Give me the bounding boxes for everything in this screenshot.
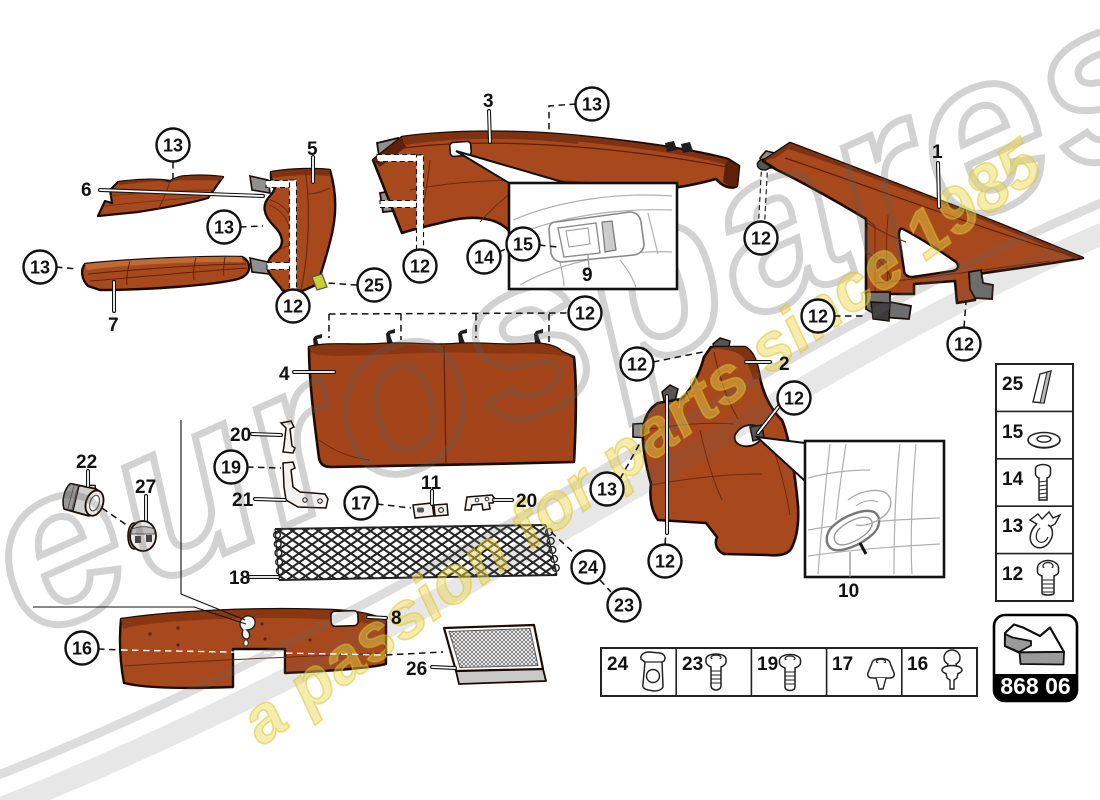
svg-text:12: 12	[627, 355, 647, 375]
svg-text:13: 13	[582, 95, 602, 115]
svg-text:12: 12	[954, 335, 974, 355]
svg-text:13: 13	[1002, 516, 1023, 537]
svg-text:14: 14	[1002, 469, 1024, 490]
svg-text:12: 12	[283, 297, 303, 317]
svg-text:19: 19	[221, 458, 241, 478]
svg-text:25: 25	[1002, 374, 1024, 395]
svg-text:12: 12	[784, 389, 804, 409]
svg-text:3: 3	[483, 91, 494, 112]
svg-text:23: 23	[682, 654, 703, 675]
svg-text:17: 17	[832, 654, 853, 675]
svg-text:12: 12	[410, 257, 430, 277]
svg-text:24: 24	[607, 654, 629, 675]
svg-text:7: 7	[108, 315, 119, 336]
svg-text:20: 20	[516, 491, 537, 512]
svg-text:9: 9	[582, 265, 593, 286]
svg-text:5: 5	[307, 139, 318, 160]
svg-text:25: 25	[364, 276, 384, 296]
svg-text:10: 10	[838, 581, 859, 602]
svg-text:12: 12	[808, 307, 828, 327]
svg-text:20: 20	[230, 425, 251, 446]
svg-text:13: 13	[30, 258, 50, 278]
svg-text:12: 12	[575, 304, 595, 324]
svg-text:23: 23	[614, 596, 634, 616]
svg-text:16: 16	[907, 654, 928, 675]
svg-text:1: 1	[932, 142, 943, 163]
svg-text:16: 16	[72, 639, 92, 659]
svg-text:6: 6	[81, 180, 92, 201]
svg-text:27: 27	[135, 477, 156, 498]
svg-text:14: 14	[474, 248, 494, 268]
svg-text:18: 18	[229, 568, 250, 589]
svg-text:19: 19	[757, 654, 778, 675]
svg-text:15: 15	[513, 235, 533, 255]
svg-text:868 06: 868 06	[1000, 673, 1070, 699]
svg-text:8: 8	[391, 608, 402, 629]
svg-text:13: 13	[214, 218, 234, 238]
svg-text:24: 24	[578, 558, 598, 578]
svg-text:13: 13	[163, 136, 183, 156]
svg-text:2: 2	[779, 354, 790, 375]
svg-text:12: 12	[655, 552, 675, 572]
svg-text:26: 26	[406, 659, 427, 680]
svg-text:12: 12	[751, 229, 771, 249]
svg-text:22: 22	[76, 452, 97, 473]
svg-text:11: 11	[421, 473, 442, 494]
svg-text:17: 17	[351, 494, 371, 514]
svg-text:21: 21	[232, 490, 254, 511]
svg-text:15: 15	[1002, 422, 1024, 443]
svg-text:4: 4	[279, 364, 290, 385]
svg-text:13: 13	[597, 480, 617, 500]
svg-text:12: 12	[1002, 564, 1023, 585]
